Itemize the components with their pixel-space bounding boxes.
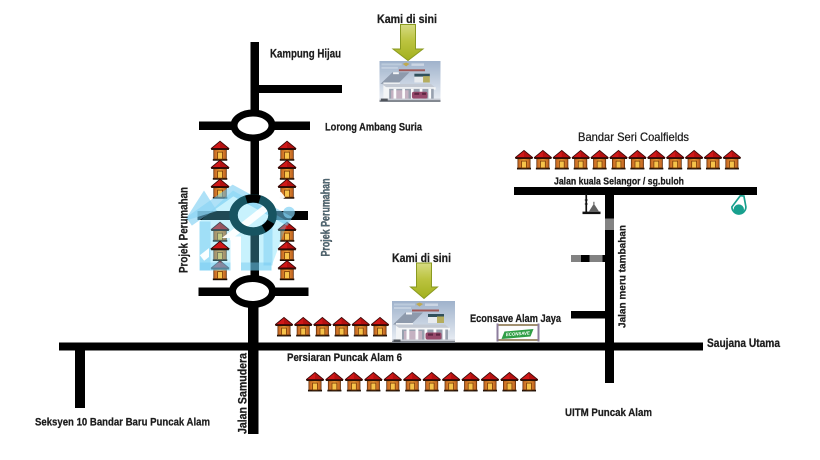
svg-text:Lorong Ambang Suria: Lorong Ambang Suria xyxy=(325,122,423,134)
svg-text:Projek Perumahan: Projek Perumahan xyxy=(321,179,333,257)
svg-text:Saujana Utama: Saujana Utama xyxy=(707,338,781,350)
svg-text:Jalan kuala Selangor / sg.bulo: Jalan kuala Selangor / sg.buloh xyxy=(554,177,684,188)
svg-text:Econsave Alam Jaya: Econsave Alam Jaya xyxy=(470,313,562,325)
svg-text:Kami di sini: Kami di sini xyxy=(392,251,451,265)
svg-text:Projek Perumahan: Projek Perumahan xyxy=(179,187,191,273)
svg-text:Bandar Seri Coalfields: Bandar Seri Coalfields xyxy=(578,130,689,144)
svg-text:Seksyen 10 Bandar Baru Puncak: Seksyen 10 Bandar Baru Puncak Alam xyxy=(35,417,210,429)
svg-text:Kami di sini: Kami di sini xyxy=(377,12,437,26)
svg-text:Jalan meru tambahan: Jalan meru tambahan xyxy=(617,225,629,328)
svg-text:Persiaran Puncak Alam 6: Persiaran Puncak Alam 6 xyxy=(287,352,402,364)
svg-text:Jalan Samudera: Jalan Samudera xyxy=(238,352,250,434)
svg-text:Kampung Hijau: Kampung Hijau xyxy=(270,49,341,61)
svg-text:UITM Puncak Alam: UITM Puncak Alam xyxy=(565,407,652,419)
